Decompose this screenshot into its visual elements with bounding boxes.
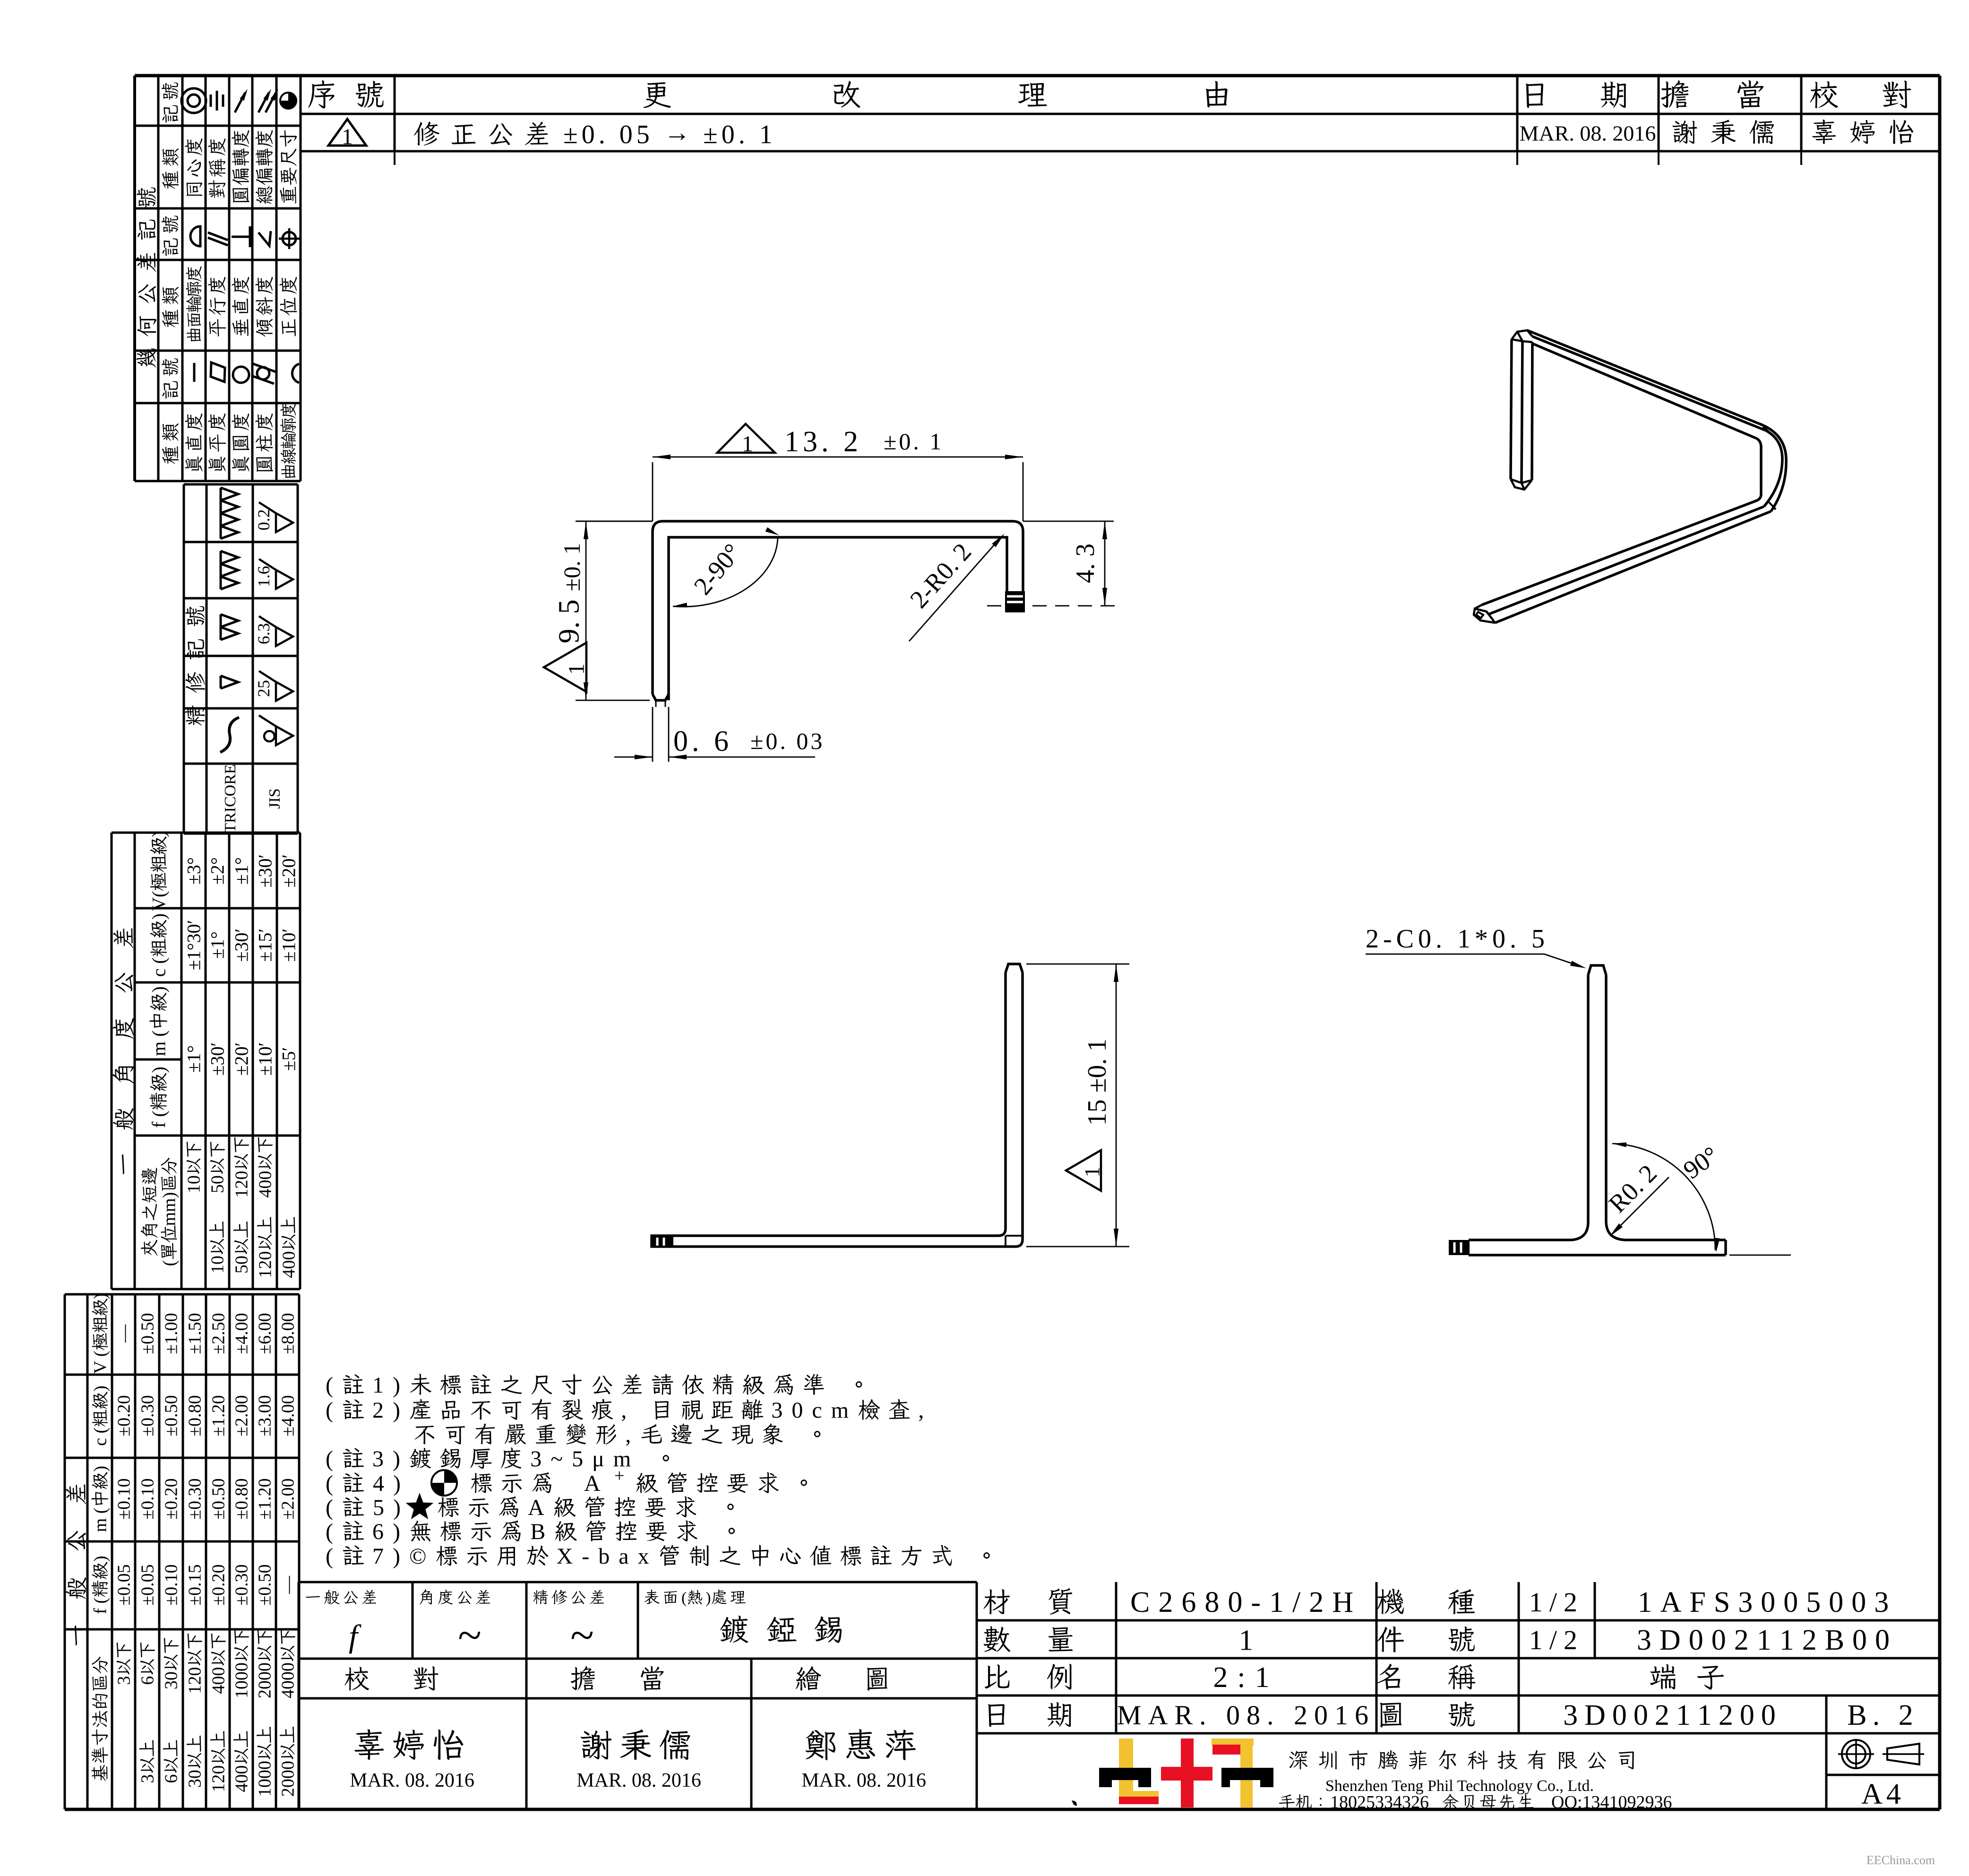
svg-text:0: 0 bbox=[1740, 1699, 1754, 1731]
svg-text:2: 2 bbox=[1734, 1624, 1749, 1656]
svg-text:1: 1 bbox=[564, 663, 589, 675]
svg-text:+: + bbox=[614, 1466, 624, 1486]
svg-text:-: - bbox=[1383, 924, 1392, 954]
svg-text:M: M bbox=[1117, 1700, 1142, 1730]
svg-text:6: 6 bbox=[138, 1676, 158, 1685]
svg-text:2: 2 bbox=[1309, 1586, 1324, 1618]
svg-text:0: 0 bbox=[1314, 1700, 1328, 1730]
svg-text:8: 8 bbox=[1204, 1586, 1219, 1618]
svg-text:): ) bbox=[148, 1067, 169, 1073]
svg-text:2: 2 bbox=[1158, 1586, 1173, 1618]
svg-text:): ) bbox=[393, 1446, 400, 1472]
svg-text:±0.50: ±0.50 bbox=[138, 1313, 158, 1354]
svg-text:H: H bbox=[1332, 1586, 1353, 1618]
svg-text:7: 7 bbox=[372, 1544, 384, 1569]
svg-text:(: ( bbox=[326, 1471, 333, 1496]
svg-text:±1.00: ±1.00 bbox=[162, 1313, 181, 1354]
svg-text:f (: f ( bbox=[91, 1598, 111, 1614]
svg-text:±0. 1: ±0. 1 bbox=[559, 543, 585, 591]
svg-text:(: ( bbox=[326, 1519, 333, 1544]
svg-text:50: 50 bbox=[208, 1175, 228, 1193]
svg-text:0: 0 bbox=[1851, 1586, 1866, 1618]
svg-text:5: 5 bbox=[572, 1446, 583, 1472]
svg-text:±5′: ±5′ bbox=[278, 1047, 299, 1071]
svg-text:6: 6 bbox=[1181, 1586, 1196, 1618]
svg-text:0: 0 bbox=[1852, 1624, 1867, 1656]
svg-text:1: 1 bbox=[1334, 1700, 1348, 1730]
svg-text:0: 0 bbox=[1829, 1586, 1843, 1618]
svg-text:1: 1 bbox=[1269, 1586, 1284, 1618]
svg-text:2: 2 bbox=[372, 1398, 384, 1423]
svg-text:400: 400 bbox=[256, 1171, 275, 1198]
svg-text:6: 6 bbox=[1355, 1700, 1368, 1730]
svg-text:2000: 2000 bbox=[255, 1662, 275, 1698]
svg-text:2: 2 bbox=[1719, 1699, 1733, 1731]
svg-text:±0.20: ±0.20 bbox=[209, 1564, 229, 1605]
svg-text:±10′: ±10′ bbox=[278, 929, 299, 962]
svg-text:2: 2 bbox=[843, 426, 858, 458]
svg-text:A: A bbox=[1148, 1700, 1168, 1730]
svg-text:4: 4 bbox=[373, 1471, 384, 1496]
svg-text:0: 0 bbox=[582, 120, 595, 149]
svg-text:-: - bbox=[582, 1544, 589, 1569]
svg-text:): ) bbox=[393, 1471, 401, 1496]
svg-text:4. 3: 4. 3 bbox=[1071, 543, 1100, 583]
svg-text:m (: m ( bbox=[148, 1030, 169, 1056]
svg-text:±0.50: ±0.50 bbox=[255, 1564, 275, 1605]
svg-text:S: S bbox=[1714, 1586, 1730, 1618]
svg-text:10: 10 bbox=[184, 1175, 204, 1193]
svg-text:0: 0 bbox=[1492, 924, 1505, 954]
svg-text:B: B bbox=[1847, 1699, 1866, 1731]
svg-text:A: A bbox=[1660, 1586, 1682, 1618]
svg-text:±0.30: ±0.30 bbox=[232, 1564, 252, 1605]
svg-text:3: 3 bbox=[114, 1676, 134, 1685]
svg-text:10: 10 bbox=[208, 1256, 228, 1274]
svg-text:400: 400 bbox=[209, 1667, 229, 1694]
svg-text:MAR. 08. 2016: MAR. 08. 2016 bbox=[1520, 121, 1656, 146]
svg-text:±0.05: ±0.05 bbox=[138, 1564, 158, 1605]
svg-text:.: . bbox=[739, 120, 745, 149]
svg-text:400: 400 bbox=[232, 1765, 252, 1792]
svg-text:c (: c ( bbox=[91, 1428, 111, 1446]
svg-text:±2°: ±2° bbox=[206, 857, 228, 885]
svg-text:,: , bbox=[918, 1398, 924, 1423]
svg-text:1: 1 bbox=[1529, 1587, 1543, 1618]
svg-text:6: 6 bbox=[714, 725, 729, 757]
svg-text:~: ~ bbox=[570, 1611, 594, 1659]
svg-text:±0.15: ±0.15 bbox=[185, 1564, 205, 1605]
svg-text:1000: 1000 bbox=[255, 1761, 275, 1797]
svg-text:±30′: ±30′ bbox=[231, 929, 252, 962]
svg-text:±2.50: ±2.50 bbox=[209, 1313, 229, 1354]
svg-text:.: . bbox=[692, 725, 699, 757]
svg-text:5: 5 bbox=[636, 120, 650, 149]
svg-text:1: 1 bbox=[342, 124, 353, 149]
svg-text:EEChina.com: EEChina.com bbox=[1866, 1853, 1935, 1867]
svg-text:5: 5 bbox=[1806, 1586, 1821, 1618]
svg-text:.: . bbox=[1267, 1700, 1274, 1730]
svg-text:B: B bbox=[530, 1519, 545, 1544]
svg-text:.: . bbox=[913, 428, 919, 455]
svg-text:0: 0 bbox=[899, 428, 911, 455]
svg-text:D: D bbox=[1584, 1699, 1606, 1731]
svg-text:±0.20: ±0.20 bbox=[162, 1478, 181, 1519]
svg-text:2: 2 bbox=[1213, 1661, 1228, 1694]
svg-text:18025334326: 18025334326 bbox=[1330, 1792, 1429, 1812]
svg-text:±1°: ±1° bbox=[183, 1045, 204, 1073]
svg-text:2: 2 bbox=[1655, 1699, 1669, 1731]
svg-text:~: ~ bbox=[458, 1611, 482, 1659]
svg-text:): ) bbox=[393, 1373, 400, 1398]
svg-text:X: X bbox=[557, 1544, 573, 1569]
svg-text:(: ( bbox=[326, 1373, 333, 1398]
svg-text:(: ( bbox=[326, 1495, 333, 1520]
svg-text:2: 2 bbox=[1564, 1587, 1577, 1618]
svg-text:B: B bbox=[1825, 1624, 1844, 1656]
svg-text:±1°: ±1° bbox=[206, 931, 228, 959]
svg-text:0: 0 bbox=[1226, 1700, 1240, 1730]
svg-text:±1.20: ±1.20 bbox=[209, 1395, 229, 1436]
svg-text:±3°: ±3° bbox=[183, 857, 204, 885]
svg-text:MAR. 08. 2016: MAR. 08. 2016 bbox=[350, 1770, 474, 1791]
svg-text:0: 0 bbox=[1634, 1699, 1648, 1731]
svg-text:8: 8 bbox=[1247, 1700, 1260, 1730]
svg-text:A: A bbox=[528, 1495, 544, 1520]
svg-text:V (: V ( bbox=[91, 1351, 111, 1374]
svg-text:50: 50 bbox=[232, 1256, 252, 1274]
svg-text:0: 0 bbox=[1875, 1624, 1890, 1656]
svg-text:x: x bbox=[638, 1544, 649, 1569]
svg-text:2: 2 bbox=[1366, 924, 1379, 954]
svg-text:.: . bbox=[1873, 1699, 1880, 1731]
svg-text:): ) bbox=[148, 986, 169, 992]
svg-text:0: 0 bbox=[1612, 1699, 1627, 1731]
svg-text:2: 2 bbox=[1564, 1625, 1577, 1655]
svg-text:): ) bbox=[91, 1293, 111, 1299]
svg-text:9. 5: 9. 5 bbox=[553, 600, 585, 644]
svg-text:C: C bbox=[1130, 1586, 1150, 1618]
svg-text:): ) bbox=[91, 1385, 111, 1392]
svg-text:-: - bbox=[1251, 1586, 1261, 1618]
svg-text:3: 3 bbox=[803, 426, 817, 458]
svg-text:0: 0 bbox=[1418, 924, 1431, 954]
svg-text:400: 400 bbox=[279, 1251, 299, 1278]
svg-text:120: 120 bbox=[209, 1765, 229, 1792]
svg-text:(: ( bbox=[326, 1544, 333, 1569]
svg-text:0.2: 0.2 bbox=[254, 509, 273, 531]
svg-text:±: ± bbox=[703, 120, 718, 149]
svg-text:1: 1 bbox=[1697, 1699, 1712, 1731]
svg-text:0: 0 bbox=[765, 728, 777, 754]
svg-text:1: 1 bbox=[1457, 924, 1470, 954]
svg-text:±4.00: ±4.00 bbox=[232, 1313, 252, 1354]
svg-text:±1°: ±1° bbox=[231, 857, 252, 885]
svg-text:—: — bbox=[278, 1575, 298, 1594]
svg-text:±3.00: ±3.00 bbox=[255, 1395, 275, 1436]
svg-text:0: 0 bbox=[1711, 1624, 1726, 1656]
svg-text:30: 30 bbox=[162, 1671, 181, 1689]
svg-text:120: 120 bbox=[185, 1667, 205, 1694]
svg-text:±2.00: ±2.00 bbox=[232, 1395, 252, 1436]
svg-text:0: 0 bbox=[1761, 1586, 1775, 1618]
svg-text:(: ( bbox=[326, 1446, 333, 1472]
svg-text:0: 0 bbox=[673, 725, 688, 757]
svg-text:R: R bbox=[1174, 1700, 1193, 1730]
svg-text:0: 0 bbox=[1761, 1699, 1776, 1731]
svg-text:±: ± bbox=[750, 728, 763, 754]
svg-text:a: a bbox=[619, 1544, 628, 1569]
svg-text:A: A bbox=[1861, 1778, 1883, 1810]
svg-text:±0.30: ±0.30 bbox=[138, 1395, 158, 1436]
svg-text:±1.20: ±1.20 bbox=[255, 1478, 275, 1519]
svg-text:): ) bbox=[148, 831, 169, 837]
svg-text:5: 5 bbox=[373, 1495, 384, 1520]
svg-text:±0.10: ±0.10 bbox=[114, 1478, 134, 1519]
svg-text:(: ( bbox=[681, 1589, 687, 1607]
svg-text:1000: 1000 bbox=[232, 1662, 252, 1698]
svg-text:0: 0 bbox=[796, 728, 808, 754]
svg-text:4: 4 bbox=[1886, 1778, 1901, 1810]
svg-text:2000: 2000 bbox=[278, 1761, 298, 1797]
svg-text:,: , bbox=[625, 1422, 631, 1447]
svg-text:.: . bbox=[1199, 1700, 1206, 1730]
svg-text:2: 2 bbox=[1899, 1699, 1913, 1731]
svg-text:1.6: 1.6 bbox=[254, 566, 273, 587]
svg-text:2: 2 bbox=[1802, 1624, 1817, 1656]
svg-text:±: ± bbox=[884, 428, 896, 455]
svg-text:1: 1 bbox=[1780, 1624, 1794, 1656]
svg-text:±0.50: ±0.50 bbox=[162, 1395, 181, 1436]
svg-text::: : bbox=[1237, 1661, 1245, 1694]
svg-text:30: 30 bbox=[185, 1770, 205, 1788]
svg-text:0: 0 bbox=[1689, 1624, 1703, 1656]
svg-text:0: 0 bbox=[722, 120, 735, 149]
svg-text:1: 1 bbox=[1529, 1625, 1543, 1655]
svg-text:120: 120 bbox=[256, 1251, 275, 1278]
svg-text:QQ:1341092936: QQ:1341092936 bbox=[1551, 1792, 1672, 1812]
svg-text:6: 6 bbox=[372, 1519, 384, 1544]
svg-text:6: 6 bbox=[162, 1774, 181, 1783]
svg-text:3: 3 bbox=[810, 728, 822, 754]
svg-text:3: 3 bbox=[372, 1446, 384, 1472]
svg-text:120: 120 bbox=[232, 1171, 252, 1198]
svg-text:±4.00: ±4.00 bbox=[278, 1395, 298, 1436]
svg-text:3: 3 bbox=[530, 1446, 542, 1472]
svg-text:V(: V( bbox=[148, 891, 169, 911]
svg-text:~: ~ bbox=[550, 1446, 563, 1472]
svg-text:mm): mm) bbox=[160, 1192, 180, 1226]
svg-text:F: F bbox=[1689, 1586, 1705, 1618]
svg-text:1: 1 bbox=[1676, 1699, 1691, 1731]
svg-text:0: 0 bbox=[1228, 1586, 1242, 1618]
svg-text:.: . bbox=[599, 120, 605, 149]
svg-text:±1.50: ±1.50 bbox=[185, 1313, 205, 1354]
svg-text:1: 1 bbox=[1255, 1661, 1270, 1694]
svg-text:μ: μ bbox=[592, 1446, 604, 1472]
svg-text:): ) bbox=[393, 1544, 400, 1569]
svg-text:±20′: ±20′ bbox=[278, 854, 299, 888]
svg-text:1: 1 bbox=[929, 428, 941, 455]
svg-text:±30′: ±30′ bbox=[254, 854, 275, 888]
svg-text:1: 1 bbox=[1757, 1624, 1771, 1656]
svg-text:): ) bbox=[148, 913, 169, 920]
svg-text:MAR. 08. 2016: MAR. 08. 2016 bbox=[576, 1770, 701, 1791]
svg-text:±10′: ±10′ bbox=[254, 1042, 275, 1076]
svg-text:0: 0 bbox=[619, 120, 633, 149]
svg-text:.: . bbox=[821, 426, 829, 458]
svg-text:): ) bbox=[91, 1556, 111, 1562]
svg-text:(: ( bbox=[326, 1398, 333, 1423]
svg-text:4000: 4000 bbox=[278, 1662, 298, 1698]
svg-text:3: 3 bbox=[1874, 1586, 1889, 1618]
svg-text:6.3: 6.3 bbox=[254, 623, 273, 645]
svg-text:C: C bbox=[1396, 924, 1414, 954]
svg-text:1: 1 bbox=[372, 1373, 384, 1398]
svg-text:—: — bbox=[114, 1324, 134, 1343]
svg-text:MAR. 08. 2016: MAR. 08. 2016 bbox=[801, 1770, 926, 1791]
svg-text:3: 3 bbox=[138, 1774, 158, 1783]
svg-text:c (: c ( bbox=[148, 957, 169, 977]
svg-text:f (: f ( bbox=[148, 1110, 169, 1128]
svg-text:1: 1 bbox=[1638, 1586, 1652, 1618]
svg-text:(: ( bbox=[160, 1260, 180, 1266]
svg-text:5: 5 bbox=[1531, 924, 1545, 954]
svg-text:±0.80: ±0.80 bbox=[185, 1395, 205, 1436]
svg-text:1: 1 bbox=[759, 120, 773, 149]
svg-text:±20′: ±20′ bbox=[231, 1042, 252, 1076]
svg-text:1: 1 bbox=[1080, 1167, 1104, 1178]
svg-text:→: → bbox=[664, 118, 690, 147]
svg-text:±0.10: ±0.10 bbox=[162, 1564, 181, 1605]
svg-text:/: / bbox=[1549, 1625, 1557, 1655]
svg-text:3: 3 bbox=[1563, 1699, 1578, 1731]
svg-text:±0.20: ±0.20 bbox=[114, 1395, 134, 1436]
svg-text:): ) bbox=[393, 1398, 400, 1423]
svg-text:*: * bbox=[1475, 924, 1488, 954]
svg-text:3: 3 bbox=[1637, 1624, 1651, 1656]
svg-text:,: , bbox=[621, 1398, 627, 1423]
svg-text:.: . bbox=[780, 728, 786, 754]
svg-text:.: . bbox=[1510, 924, 1516, 954]
svg-text:3: 3 bbox=[1738, 1586, 1753, 1618]
svg-text:±0.10: ±0.10 bbox=[138, 1478, 158, 1519]
svg-text:©: © bbox=[409, 1544, 426, 1569]
svg-text:3: 3 bbox=[771, 1398, 782, 1423]
svg-text:/: / bbox=[1292, 1586, 1301, 1618]
svg-text:±0.50: ±0.50 bbox=[209, 1478, 229, 1519]
svg-text:): ) bbox=[393, 1519, 400, 1544]
svg-text:.: . bbox=[1436, 924, 1442, 954]
svg-text:): ) bbox=[91, 1466, 111, 1472]
svg-text:1: 1 bbox=[1239, 1624, 1254, 1656]
svg-text:0: 0 bbox=[1783, 1586, 1798, 1618]
svg-text:±0.05: ±0.05 bbox=[114, 1564, 134, 1605]
svg-text:1: 1 bbox=[742, 431, 753, 456]
svg-text:±30′: ±30′ bbox=[206, 1042, 228, 1076]
svg-text:±1°30′: ±1°30′ bbox=[183, 920, 204, 971]
svg-text:TRICORE: TRICORE bbox=[222, 764, 239, 833]
svg-text:±15′: ±15′ bbox=[254, 929, 275, 962]
svg-text:±: ± bbox=[563, 120, 578, 149]
svg-text:15 ±0. 1: 15 ±0. 1 bbox=[1083, 1039, 1112, 1126]
svg-text:JIS: JIS bbox=[266, 788, 284, 809]
svg-text:b: b bbox=[598, 1544, 610, 1569]
svg-text:0: 0 bbox=[791, 1398, 803, 1423]
svg-text:±6.00: ±6.00 bbox=[255, 1313, 275, 1354]
svg-text:±0.80: ±0.80 bbox=[232, 1478, 252, 1519]
svg-text:): ) bbox=[393, 1495, 401, 1520]
svg-text:m: m bbox=[831, 1398, 849, 1423]
svg-text:c: c bbox=[812, 1398, 822, 1423]
svg-text:±8.00: ±8.00 bbox=[278, 1313, 298, 1354]
svg-text:/: / bbox=[1549, 1587, 1557, 1618]
svg-text:A: A bbox=[584, 1471, 601, 1496]
svg-text:1: 1 bbox=[784, 426, 799, 458]
svg-text:2: 2 bbox=[1294, 1700, 1307, 1730]
svg-text:±2.00: ±2.00 bbox=[278, 1478, 298, 1519]
svg-text:±0.30: ±0.30 bbox=[185, 1478, 205, 1519]
svg-text:25: 25 bbox=[254, 680, 273, 697]
svg-text:D: D bbox=[1659, 1624, 1681, 1656]
svg-text:m (: m ( bbox=[91, 1507, 111, 1532]
svg-text:): ) bbox=[705, 1589, 711, 1607]
